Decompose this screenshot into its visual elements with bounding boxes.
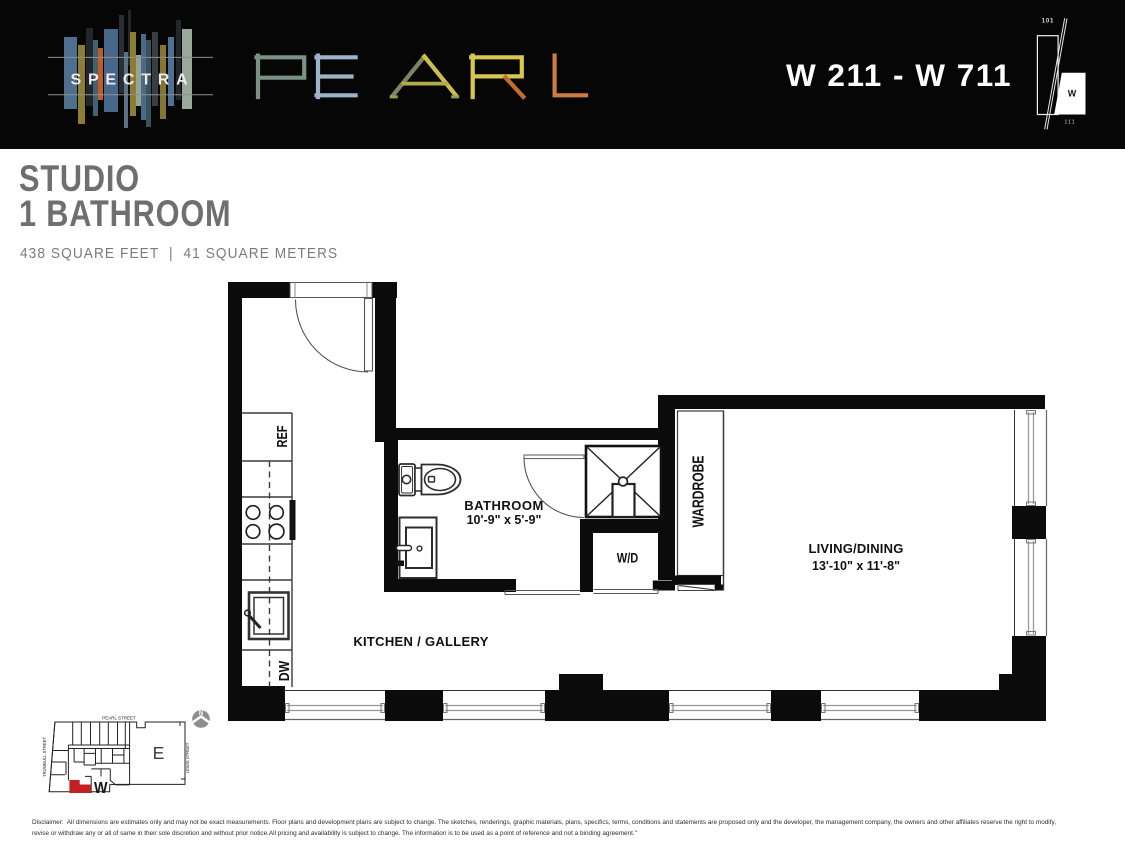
svg-text:BATHROOM: BATHROOM bbox=[464, 498, 544, 513]
svg-text:10'-9" x 5'-9": 10'-9" x 5'-9" bbox=[467, 513, 542, 527]
svg-text:E: E bbox=[153, 743, 165, 763]
svg-text:KITCHEN / GALLERY: KITCHEN / GALLERY bbox=[353, 634, 488, 649]
svg-text:W: W bbox=[94, 780, 108, 797]
svg-text:REF: REF bbox=[274, 426, 291, 448]
svg-text:LIVING/DINING: LIVING/DINING bbox=[808, 541, 903, 556]
svg-text:TRUMBULL STREET: TRUMBULL STREET bbox=[42, 737, 47, 778]
svg-text:W/D: W/D bbox=[617, 550, 639, 566]
svg-text:DW: DW bbox=[276, 660, 293, 681]
svg-text:13'-10" x 11'-8": 13'-10" x 11'-8" bbox=[812, 559, 900, 573]
svg-text:N: N bbox=[199, 711, 203, 717]
svg-text:WARDROBE: WARDROBE bbox=[691, 455, 708, 527]
svg-text:LEWIS STREET: LEWIS STREET bbox=[185, 742, 190, 773]
svg-text:PEARL STREET: PEARL STREET bbox=[102, 716, 136, 721]
